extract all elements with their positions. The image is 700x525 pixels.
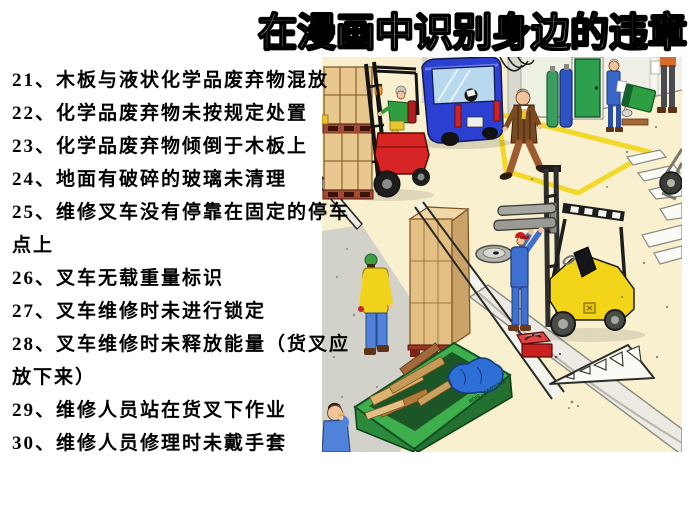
green-door (572, 57, 603, 119)
list-line: 26、叉车无载重量标识 (12, 262, 350, 295)
list-line: 24、地面有破碎的玻璃未清理 (12, 163, 350, 196)
list-line: 27、叉车维修时未进行锁定 (12, 295, 350, 328)
gas-cylinders (547, 64, 572, 127)
list-line: 28、叉车维修时未释放能量（货叉应 (12, 328, 350, 361)
crate-on-pallet (408, 207, 470, 357)
list-line-continuation: 放下来） (12, 361, 350, 394)
violation-list: 21、木板与液状化学品废弃物混放 22、化学品废弃物未按规定处置 23、化学品废… (12, 64, 350, 460)
drum-lid (476, 246, 512, 263)
page-title: 在漫画中识别身边的违章 (258, 2, 687, 58)
list-line: 21、木板与液状化学品废弃物混放 (12, 64, 350, 97)
blue-van (414, 57, 510, 149)
warehouse-cartoon-image: BOIS - CARTONS (322, 57, 682, 452)
list-line: 25、维修叉车没有停靠在固定的停车 (12, 196, 350, 229)
list-line: 22、化学品废弃物未按规定处置 (12, 97, 350, 130)
list-line: 30、维修人员修理时未戴手套 (12, 427, 350, 460)
list-line: 23、化学品废弃物倾倒于木板上 (12, 130, 350, 163)
presentation-slide: 在漫画中识别身边的违章 21、木板与液状化学品废弃物混放 22、化学品废弃物未按… (0, 0, 700, 525)
list-line: 29、维修人员站在货叉下作业 (12, 394, 350, 427)
list-line-continuation: 点上 (12, 229, 350, 262)
